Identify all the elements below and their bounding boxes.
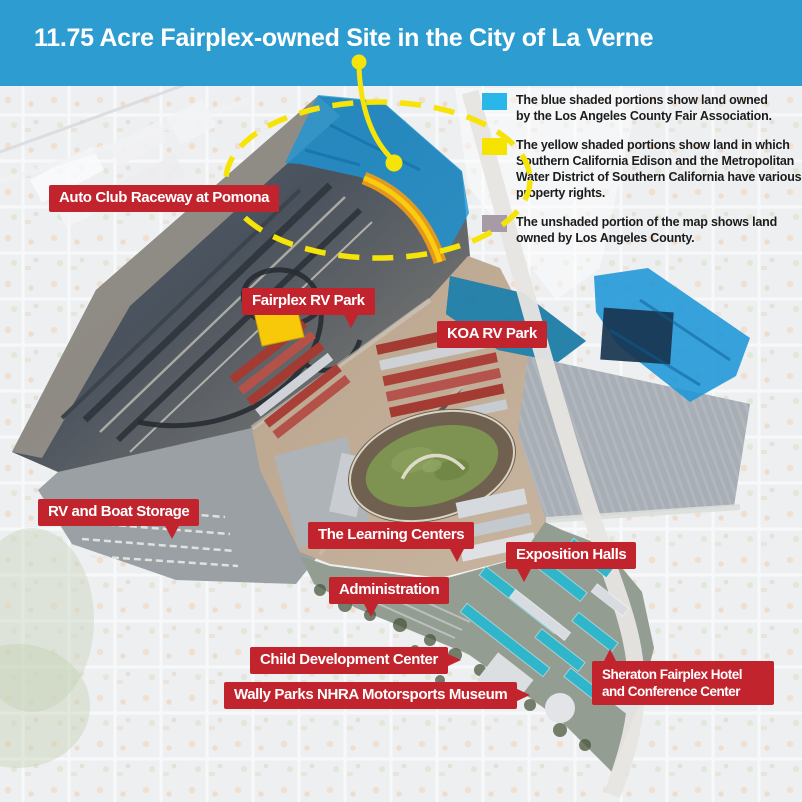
page-title: 11.75 Acre Fairplex-owned Site in the Ci… xyxy=(34,24,653,53)
legend-text-blue: The blue shaded portions show land owned… xyxy=(516,92,772,124)
map-label-the-learning-centers: The Learning Centers xyxy=(308,522,474,549)
pointer-icon xyxy=(515,688,530,702)
pointer-icon xyxy=(449,547,465,562)
map-label-administration: Administration xyxy=(329,577,449,604)
map-label-koa-rv-park: KOA RV Park xyxy=(437,321,547,348)
pointer-icon xyxy=(446,653,461,667)
map-label-auto-club-raceway: Auto Club Raceway at Pomona xyxy=(49,185,279,212)
legend-text-unshaded: The unshaded portion of the map shows la… xyxy=(516,214,777,246)
yellow-swatch-icon xyxy=(482,138,507,155)
map-label-sheraton-fairplex-hotel: Sheraton Fairplex Hotel and Conference C… xyxy=(592,661,774,705)
map-label-fairplex-rv-park: Fairplex RV Park xyxy=(242,288,375,315)
gray-swatch-icon xyxy=(482,215,507,232)
infographic-map: 11.75 Acre Fairplex-owned Site in the Ci… xyxy=(0,0,802,802)
map-label-exposition-halls: Exposition Halls xyxy=(506,542,636,569)
legend: The blue shaded portions show land owned… xyxy=(482,92,788,259)
pointer-icon xyxy=(363,602,379,617)
map-label-rv-and-boat-storage: RV and Boat Storage xyxy=(38,499,199,526)
map-label-child-development-center: Child Development Center xyxy=(250,647,448,674)
legend-text-yellow: The yellow shaded portions show land in … xyxy=(516,137,801,201)
pointer-icon xyxy=(603,649,617,663)
legend-item-unshaded: The unshaded portion of the map shows la… xyxy=(482,214,788,246)
pointer-icon xyxy=(516,567,532,582)
pointer-icon xyxy=(343,313,359,328)
legend-item-yellow-shaded: The yellow shaded portions show land in … xyxy=(482,137,788,201)
map-label-wally-parks-museum: Wally Parks NHRA Motorsports Museum xyxy=(224,682,517,709)
blue-swatch-icon xyxy=(482,93,507,110)
legend-item-blue-shaded: The blue shaded portions show land owned… xyxy=(482,92,788,124)
title-bar: 11.75 Acre Fairplex-owned Site in the Ci… xyxy=(0,0,802,86)
pointer-icon xyxy=(164,524,180,539)
